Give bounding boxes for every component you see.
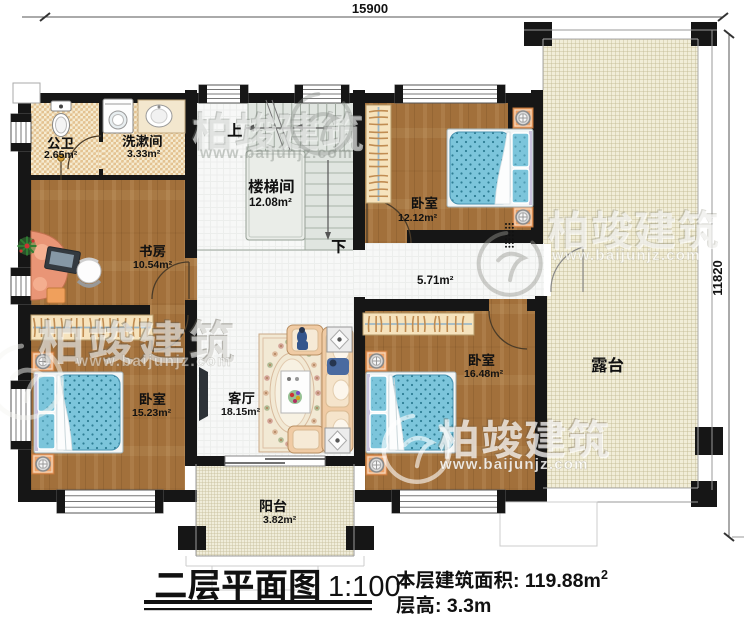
- svg-text:15900: 15900: [352, 1, 388, 16]
- svg-text:10.54m²: 10.54m²: [133, 259, 173, 271]
- svg-text:www.baijunjz.com: www.baijunjz.com: [199, 145, 353, 162]
- svg-text:www.baijunjz.com: www.baijunjz.com: [439, 456, 589, 473]
- svg-text:12.12m²: 12.12m²: [398, 212, 438, 224]
- svg-text:18.15m²: 18.15m²: [221, 406, 261, 418]
- svg-text:3.33m²: 3.33m²: [127, 148, 161, 160]
- svg-text:2.65m²: 2.65m²: [44, 149, 78, 161]
- svg-text:www.baijunjz.com: www.baijunjz.com: [551, 247, 701, 264]
- svg-text:12.08m²: 12.08m²: [249, 197, 292, 209]
- svg-text:3.82m²: 3.82m²: [263, 514, 297, 526]
- svg-text:2: 2: [601, 568, 608, 582]
- svg-text:11820: 11820: [710, 260, 725, 295]
- svg-text:1:100: 1:100: [328, 571, 401, 603]
- svg-text:5.71m²: 5.71m²: [417, 275, 454, 287]
- svg-text:: 119.88m: : 119.88m: [513, 570, 601, 592]
- svg-text:15.23m²: 15.23m²: [132, 407, 172, 419]
- svg-text:www.baijunjz.com: www.baijunjz.com: [75, 353, 232, 370]
- svg-text:: 3.3m: : 3.3m: [435, 595, 491, 617]
- svg-text:16.48m²: 16.48m²: [464, 368, 504, 380]
